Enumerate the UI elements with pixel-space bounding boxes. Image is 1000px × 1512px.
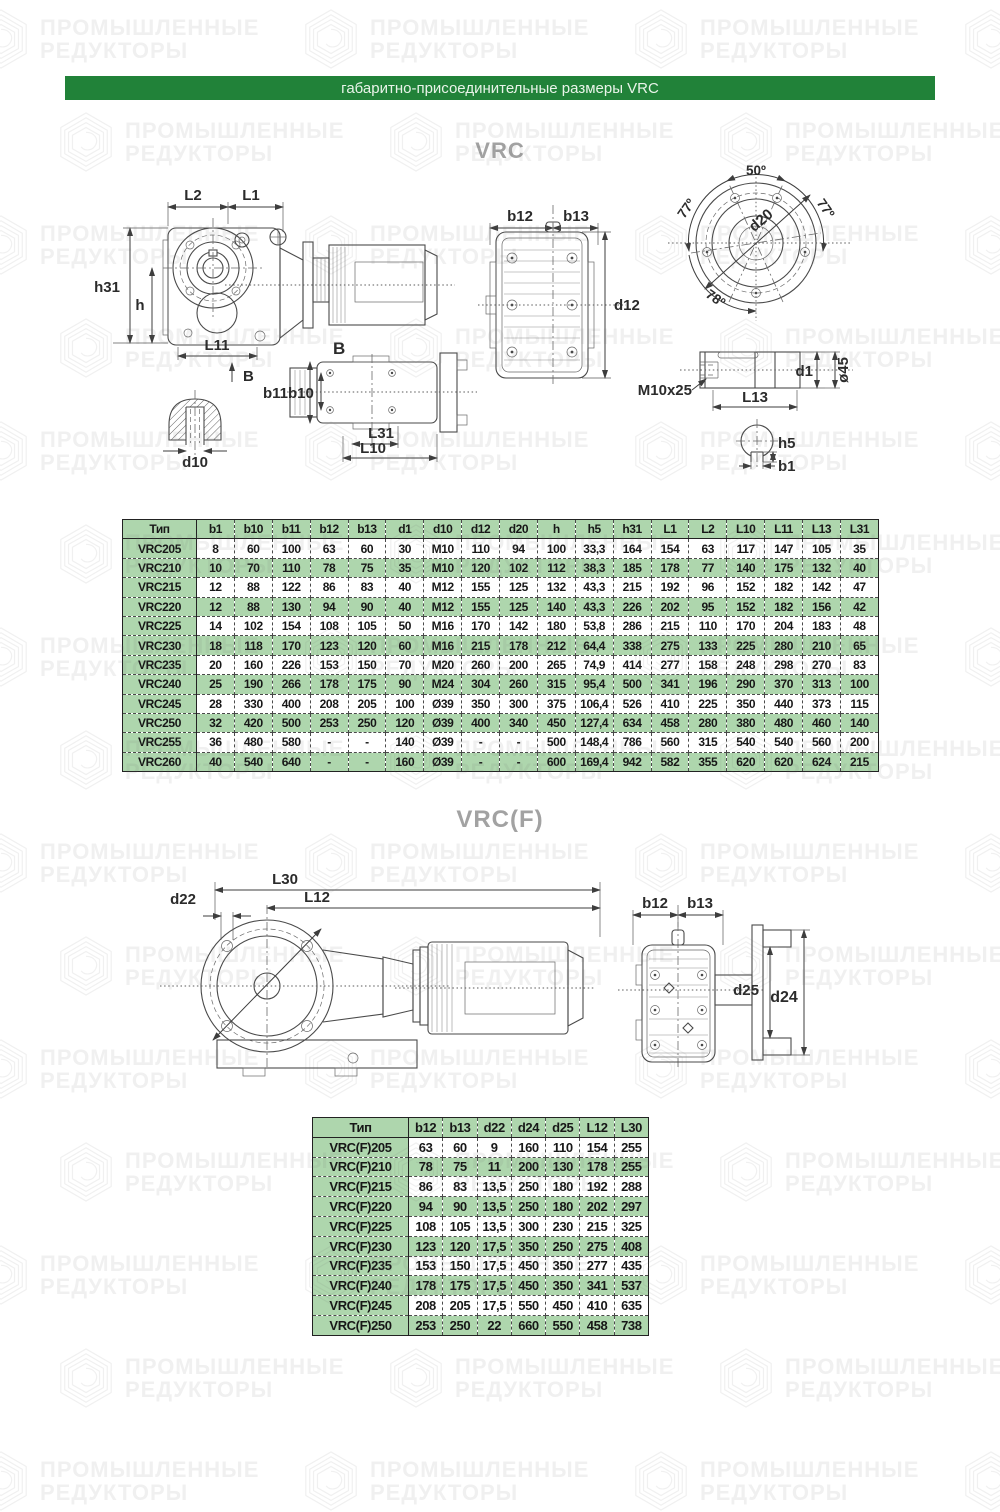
- watermark: ПРОМЫШЛЕННЫЕ РЕДУКТОРЫ: [960, 832, 1000, 894]
- table-cell: 182: [765, 597, 803, 616]
- watermark-line1: ПРОМЫШЛЕННЫЕ: [40, 16, 259, 39]
- table-cell: 620: [727, 752, 765, 771]
- table-cell: 133: [689, 636, 727, 655]
- table-row: VRC(F)23515315017,5450350277435: [313, 1256, 649, 1276]
- table-cell: 64,4: [575, 636, 613, 655]
- table-cell: 78: [409, 1157, 443, 1177]
- table-cell: 142: [803, 578, 841, 597]
- table-cell: 117: [727, 539, 765, 558]
- table-cell: 635: [614, 1296, 648, 1316]
- table-cell: 410: [580, 1296, 614, 1316]
- table-cell: 297: [614, 1197, 648, 1217]
- table-cell: 560: [651, 733, 689, 752]
- table-cell: 127,4: [575, 713, 613, 732]
- table-row: VRC2201288130949040M1215512514043,322620…: [123, 597, 879, 616]
- table-row: VRC(F)24520820517,5550450410635: [313, 1296, 649, 1316]
- dim-L2: L2: [184, 187, 202, 204]
- table-cell: 200: [500, 655, 538, 674]
- table-cell: 120: [462, 558, 500, 577]
- hexagon-logo-icon: [715, 1141, 777, 1203]
- table-cell: 341: [580, 1276, 614, 1296]
- hexagon-logo-icon: [960, 1244, 1000, 1306]
- watermark-line2: РЕДУКТОРЫ: [40, 1481, 259, 1504]
- table-cell: 100: [272, 539, 310, 558]
- table-cell: 169,4: [575, 752, 613, 771]
- table-cell: 178: [580, 1157, 614, 1177]
- table-cell: Ø39: [424, 694, 462, 713]
- table-cell: 277: [580, 1256, 614, 1276]
- table-cell: M16: [424, 636, 462, 655]
- table-cell: 35: [386, 558, 424, 577]
- row-header: VRC210: [123, 558, 197, 577]
- table-row: VRC(F)220949013,5250180202297: [313, 1197, 649, 1217]
- table-cell: 102: [500, 558, 538, 577]
- hexagon-logo-icon: [960, 420, 1000, 482]
- table-cell: 180: [537, 616, 575, 635]
- table-cell: 370: [765, 675, 803, 694]
- row-header: VRC(F)250: [313, 1315, 409, 1335]
- table-cell: 270: [803, 655, 841, 674]
- row-header: VRC(F)220: [313, 1197, 409, 1217]
- dim-d1: d1: [795, 363, 813, 380]
- table-cell: 94: [500, 539, 538, 558]
- row-header: VRC240: [123, 675, 197, 694]
- dim-L30: L30: [272, 871, 298, 888]
- table-cell: 83: [443, 1177, 477, 1197]
- table-cell: 48: [840, 616, 878, 635]
- table-cell: 11: [477, 1157, 511, 1177]
- table-cell: 170: [272, 636, 310, 655]
- table-cell: 105: [348, 616, 386, 635]
- table-cell: 153: [310, 655, 348, 674]
- column-header: h5: [575, 520, 613, 539]
- table-cell: 110: [462, 539, 500, 558]
- table-cell: 43,3: [575, 597, 613, 616]
- table-cell: 105: [443, 1216, 477, 1236]
- watermark: ПРОМЫШЛЕННЫЕ РЕДУКТОРЫ: [630, 8, 919, 70]
- hexagon-logo-icon: [300, 8, 362, 70]
- dim-b12: b12: [642, 895, 668, 912]
- column-header: d25: [546, 1118, 580, 1138]
- table-cell: 288: [614, 1177, 648, 1197]
- watermark-line1: ПРОМЫШЛЕННЫЕ: [785, 1355, 1000, 1378]
- table-cell: 20: [197, 655, 235, 674]
- view-b-arrow-label: B: [243, 368, 254, 385]
- table-cell: 147: [765, 539, 803, 558]
- table-cell: 75: [348, 558, 386, 577]
- table-cell: 340: [500, 713, 538, 732]
- table-cell: 150: [348, 655, 386, 674]
- table-cell: 175: [348, 675, 386, 694]
- watermark: ПРОМЫШЛЕННЫЕ РЕДУКТОРЫ: [385, 1347, 674, 1409]
- dim-b10: b10: [288, 385, 314, 402]
- table-cell: 40: [840, 558, 878, 577]
- table-cell: 265: [537, 655, 575, 674]
- watermark-line1: ПРОМЫШЛЕННЫЕ: [700, 16, 919, 39]
- table-cell: 250: [511, 1197, 545, 1217]
- table-cell: 500: [537, 733, 575, 752]
- watermark-line2: РЕДУКТОРЫ: [125, 1378, 344, 1401]
- table-cell: 200: [840, 733, 878, 752]
- table-cell: 50: [386, 616, 424, 635]
- watermark-line2: РЕДУКТОРЫ: [40, 1275, 259, 1298]
- dim-h31: h31: [94, 279, 120, 296]
- table-cell: 90: [443, 1197, 477, 1217]
- table-cell: -: [348, 752, 386, 771]
- table-cell: 480: [234, 733, 272, 752]
- table-cell: 298: [765, 655, 803, 674]
- column-header: b12: [409, 1118, 443, 1138]
- hexagon-logo-icon: [960, 8, 1000, 70]
- table-cell: 208: [310, 694, 348, 713]
- table-cell: 202: [651, 597, 689, 616]
- table-cell: 13,5: [477, 1216, 511, 1236]
- vrc-keyway-detail-drawing: d10: [155, 385, 235, 470]
- table-cell: M16: [424, 616, 462, 635]
- table-cell: 12: [197, 578, 235, 597]
- dim-d12: d12: [614, 297, 640, 314]
- table-cell: 350: [546, 1276, 580, 1296]
- watermark-line2: РЕДУКТОРЫ: [785, 1378, 1000, 1401]
- table-row: VRC(F)210787511200130178255: [313, 1157, 649, 1177]
- table-cell: 100: [840, 675, 878, 694]
- row-header: VRC(F)215: [313, 1177, 409, 1197]
- table-cell: 215: [462, 636, 500, 655]
- table-cell: 560: [803, 733, 841, 752]
- watermark-line2: РЕДУКТОРЫ: [785, 1172, 1000, 1195]
- table-cell: 120: [443, 1236, 477, 1256]
- table-cell: 148,4: [575, 733, 613, 752]
- dim-L13: L13: [742, 389, 768, 406]
- dim-L11: L11: [204, 337, 229, 354]
- table-cell: 178: [409, 1276, 443, 1296]
- table-cell: 13,5: [477, 1197, 511, 1217]
- table-row: VRC(F)23012312017,5350250275408: [313, 1236, 649, 1256]
- table-row: VRC2151288122868340M1215512513243,321519…: [123, 578, 879, 597]
- hexagon-logo-icon: [630, 420, 692, 482]
- table-cell: 33,3: [575, 539, 613, 558]
- table-cell: 400: [462, 713, 500, 732]
- table-cell: 450: [511, 1276, 545, 1296]
- table-cell: 280: [689, 713, 727, 732]
- watermark-line1: ПРОМЫШЛЕННЫЕ: [785, 1149, 1000, 1172]
- table-cell: 156: [803, 597, 841, 616]
- table-cell: 35: [840, 539, 878, 558]
- column-header: d20: [500, 520, 538, 539]
- hexagon-logo-icon: [0, 214, 32, 276]
- table-cell: 458: [580, 1315, 614, 1335]
- row-header: VRC(F)205: [313, 1137, 409, 1157]
- dim-dia45: ø45: [835, 357, 852, 383]
- table-cell: 526: [613, 694, 651, 713]
- row-header: VRC(F)210: [313, 1157, 409, 1177]
- table-cell: 140: [537, 597, 575, 616]
- table-cell: 942: [613, 752, 651, 771]
- table-cell: 120: [348, 636, 386, 655]
- table-cell: 112: [537, 558, 575, 577]
- table-cell: -: [348, 733, 386, 752]
- table-cell: 204: [765, 616, 803, 635]
- hexagon-logo-icon: [630, 1450, 692, 1512]
- table-cell: 212: [537, 636, 575, 655]
- dim-h5: h5: [778, 435, 796, 452]
- table-row: VRC2251410215410810550M1617014218053,828…: [123, 616, 879, 635]
- page: { "colors": { "header_green": "#218239",…: [0, 0, 1000, 1414]
- watermark-line1: ПРОМЫШЛЕННЫЕ: [455, 1355, 674, 1378]
- table-cell: 17,5: [477, 1296, 511, 1316]
- table-cell: 260: [500, 675, 538, 694]
- column-header: L1: [651, 520, 689, 539]
- table-cell: 60: [234, 539, 272, 558]
- table-cell: 410: [651, 694, 689, 713]
- table-cell: 90: [348, 597, 386, 616]
- table-cell: 102: [234, 616, 272, 635]
- watermark: ПРОМЫШЛЕННЫЕ РЕДУКТОРЫ: [630, 1450, 919, 1512]
- table-cell: 170: [462, 616, 500, 635]
- watermark-line2: РЕДУКТОРЫ: [370, 39, 589, 62]
- watermark-line1: ПРОМЫШЛЕННЫЕ: [125, 1355, 344, 1378]
- hexagon-logo-icon: [715, 1347, 777, 1409]
- column-header: h: [537, 520, 575, 539]
- table-cell: 400: [272, 694, 310, 713]
- table-cell: 290: [727, 675, 765, 694]
- table-cell: 106,4: [575, 694, 613, 713]
- column-header: d22: [477, 1118, 511, 1138]
- row-header: VRC(F)225: [313, 1216, 409, 1236]
- vrc-shaft-view-drawing: M10x25 d1 ø45 L13: [635, 345, 860, 420]
- row-header: VRC(F)240: [313, 1276, 409, 1296]
- dim-b1: b1: [778, 458, 796, 475]
- table-cell: 540: [765, 733, 803, 752]
- table-cell: 178: [310, 675, 348, 694]
- motor-fins: [333, 247, 345, 323]
- table-cell: 500: [272, 713, 310, 732]
- table-cell: 60: [386, 636, 424, 655]
- hexagon-logo-icon: [55, 729, 117, 791]
- table-cell: 253: [310, 713, 348, 732]
- table-cell: M10: [424, 539, 462, 558]
- table-cell: 17,5: [477, 1236, 511, 1256]
- table-cell: 130: [272, 597, 310, 616]
- table-cell: 17,5: [477, 1276, 511, 1296]
- hexagon-logo-icon: [0, 8, 32, 70]
- table-cell: 47: [840, 578, 878, 597]
- table-cell: 380: [727, 713, 765, 732]
- row-header: VRC260: [123, 752, 197, 771]
- table-cell: 105: [803, 539, 841, 558]
- table-cell: 230: [546, 1216, 580, 1236]
- table-cell: -: [310, 752, 348, 771]
- watermark: ПРОМЫШЛЕННЫЕ РЕДУКТОРЫ: [0, 1450, 259, 1512]
- table-cell: 22: [477, 1315, 511, 1335]
- watermark-line2: РЕДУКТОРЫ: [700, 1275, 919, 1298]
- hexagon-logo-icon: [300, 1450, 362, 1512]
- table-cell: 180: [546, 1197, 580, 1217]
- column-header: L30: [614, 1118, 648, 1138]
- table-row: VRC26040540640--160Ø39--600169,494258235…: [123, 752, 879, 771]
- vrc-bottom-view-drawing: B b11 b10 L31 L10: [255, 340, 485, 480]
- table-cell: 160: [234, 655, 272, 674]
- watermark-line2: РЕДУКТОРЫ: [455, 1378, 674, 1401]
- table-cell: 8: [197, 539, 235, 558]
- row-header: VRC220: [123, 597, 197, 616]
- table-cell: 155: [462, 578, 500, 597]
- table-cell: 132: [537, 578, 575, 597]
- table-cell: 86: [310, 578, 348, 597]
- column-header: b13: [443, 1118, 477, 1138]
- table-cell: 53,8: [575, 616, 613, 635]
- watermark: ПРОМЫШЛЕННЫЕ РЕДУКТОРЫ: [630, 1244, 919, 1306]
- table-cell: 250: [348, 713, 386, 732]
- table-cell: 77: [689, 558, 727, 577]
- table-cell: 125: [500, 578, 538, 597]
- dim-b13: b13: [563, 208, 589, 225]
- table-cell: 634: [613, 713, 651, 732]
- table-cell: 450: [546, 1296, 580, 1316]
- dim-angle-77-right: 77º: [814, 196, 838, 221]
- table-cell: -: [500, 752, 538, 771]
- watermark: ПРОМЫШЛЕННЫЕ РЕДУКТОРЫ: [0, 8, 259, 70]
- table-cell: 500: [613, 675, 651, 694]
- table-row: VRC2402519026617817590M2430426031595,450…: [123, 675, 879, 694]
- housing-bolt-bosses: [507, 253, 577, 357]
- table-row: VRC24528330400208205100Ø39350300375106,4…: [123, 694, 879, 713]
- table-cell: 205: [443, 1296, 477, 1316]
- table-cell: 624: [803, 752, 841, 771]
- vrc-rear-view-drawing: b12 b13 d12: [478, 195, 643, 395]
- table-cell: M20: [424, 655, 462, 674]
- watermark-line2: РЕДУКТОРЫ: [40, 39, 259, 62]
- table-cell: 341: [651, 675, 689, 694]
- hexagon-logo-icon: [0, 626, 32, 688]
- table-cell: 215: [580, 1216, 614, 1236]
- table-cell: 255: [614, 1157, 648, 1177]
- table-row: VRC(F)20563609160110154255: [313, 1137, 649, 1157]
- table-cell: 123: [409, 1236, 443, 1256]
- watermark-line1: ПРОМЫШЛЕННЫЕ: [370, 840, 589, 863]
- watermark: ПРОМЫШЛЕННЫЕ РЕДУКТОРЫ: [0, 1244, 259, 1306]
- dim-b13: b13: [687, 895, 713, 912]
- table-cell: 350: [727, 694, 765, 713]
- table-cell: 414: [613, 655, 651, 674]
- table-row: VRC(F)24017817517,5450350341537: [313, 1276, 649, 1296]
- table-cell: 450: [511, 1256, 545, 1276]
- housing-bolt-bosses: [651, 971, 707, 1050]
- table-cell: 537: [614, 1276, 648, 1296]
- table-cell: 14: [197, 616, 235, 635]
- table-row: VRC25536480580--140Ø39--500148,478656031…: [123, 733, 879, 752]
- dim-d22: d22: [170, 891, 196, 908]
- table-row: VRC2101070110787535M1012010211238,318517…: [123, 558, 879, 577]
- column-header: b10: [234, 520, 272, 539]
- watermark: ПРОМЫШЛЕННЫЕ РЕДУКТОРЫ: [55, 1347, 344, 1409]
- table-cell: 83: [348, 578, 386, 597]
- table-cell: 123: [310, 636, 348, 655]
- hexagon-logo-icon: [55, 523, 117, 585]
- table-cell: 96: [689, 578, 727, 597]
- table-cell: 350: [511, 1236, 545, 1256]
- table-cell: 74,9: [575, 655, 613, 674]
- table-cell: 330: [234, 694, 272, 713]
- column-header: L13: [803, 520, 841, 539]
- table-cell: 786: [613, 733, 651, 752]
- table-cell: 94: [310, 597, 348, 616]
- column-header: Тип: [123, 520, 197, 539]
- column-header: d24: [511, 1118, 545, 1138]
- table-cell: 226: [613, 597, 651, 616]
- table-cell: 215: [840, 752, 878, 771]
- table-cell: 600: [537, 752, 575, 771]
- table-cell: 420: [234, 713, 272, 732]
- row-header: VRC(F)245: [313, 1296, 409, 1316]
- column-header: b12: [310, 520, 348, 539]
- table-cell: 375: [537, 694, 575, 713]
- watermark: ПРОМЫШЛЕННЫЕ РЕДУКТОРЫ: [960, 1450, 1000, 1512]
- row-header: VRC(F)230: [313, 1236, 409, 1256]
- column-header: L11: [765, 520, 803, 539]
- table-cell: 660: [511, 1315, 545, 1335]
- table-cell: 65: [840, 636, 878, 655]
- table-cell: 140: [386, 733, 424, 752]
- bottom-bolt-holes: [327, 370, 396, 414]
- column-header: b11: [272, 520, 310, 539]
- column-header: d1: [386, 520, 424, 539]
- table-cell: 200: [511, 1157, 545, 1177]
- table-cell: 9: [477, 1137, 511, 1157]
- table-cell: 18: [197, 636, 235, 655]
- table-cell: -: [310, 733, 348, 752]
- table-cell: M10: [424, 558, 462, 577]
- vrc-dimensions-table: Типb1b10b11b12b13d1d10d12d20hh5h31L1L2L1…: [122, 519, 879, 772]
- table-cell: 108: [310, 616, 348, 635]
- table-cell: 225: [727, 636, 765, 655]
- watermark: ПРОМЫШЛЕННЫЕ РЕДУКТОРЫ: [960, 1038, 1000, 1100]
- table-cell: 250: [511, 1177, 545, 1197]
- table-cell: 313: [803, 675, 841, 694]
- table-cell: Ø39: [424, 713, 462, 732]
- table-row: VRC25032420500253250120Ø39400340450127,4…: [123, 713, 879, 732]
- table-cell: 300: [511, 1216, 545, 1236]
- column-header: L2: [689, 520, 727, 539]
- table-cell: 132: [803, 558, 841, 577]
- column-header: h31: [613, 520, 651, 539]
- watermark-line1: ПРОМЫШЛЕННЫЕ: [40, 840, 259, 863]
- table-cell: 60: [443, 1137, 477, 1157]
- watermark-line1: ПРОМЫШЛЕННЫЕ: [370, 16, 589, 39]
- watermark: ПРОМЫШЛЕННЫЕ РЕДУКТОРЫ: [960, 420, 1000, 482]
- table-cell: -: [462, 733, 500, 752]
- table-cell: 10: [197, 558, 235, 577]
- table-cell: 88: [234, 578, 272, 597]
- watermark: ПРОМЫШЛЕННЫЕ РЕДУКТОРЫ: [715, 1347, 1000, 1409]
- table-cell: 25: [197, 675, 235, 694]
- table-cell: 63: [689, 539, 727, 558]
- vrc-section-title: VRC: [0, 138, 1000, 164]
- hexagon-logo-icon: [960, 626, 1000, 688]
- row-header: VRC255: [123, 733, 197, 752]
- table-cell: 94: [409, 1197, 443, 1217]
- table-cell: 248: [727, 655, 765, 674]
- column-header: b1: [197, 520, 235, 539]
- table-row: VRC(F)215868313,5250180192288: [313, 1177, 649, 1197]
- watermark: ПРОМЫШЛЕННЫЕ РЕДУКТОРЫ: [715, 1141, 1000, 1203]
- table-cell: 78: [310, 558, 348, 577]
- table-cell: -: [462, 752, 500, 771]
- table-cell: 130: [546, 1157, 580, 1177]
- watermark-line2: РЕДУКТОРЫ: [700, 863, 919, 886]
- row-header: VRC230: [123, 636, 197, 655]
- table-cell: 355: [689, 752, 727, 771]
